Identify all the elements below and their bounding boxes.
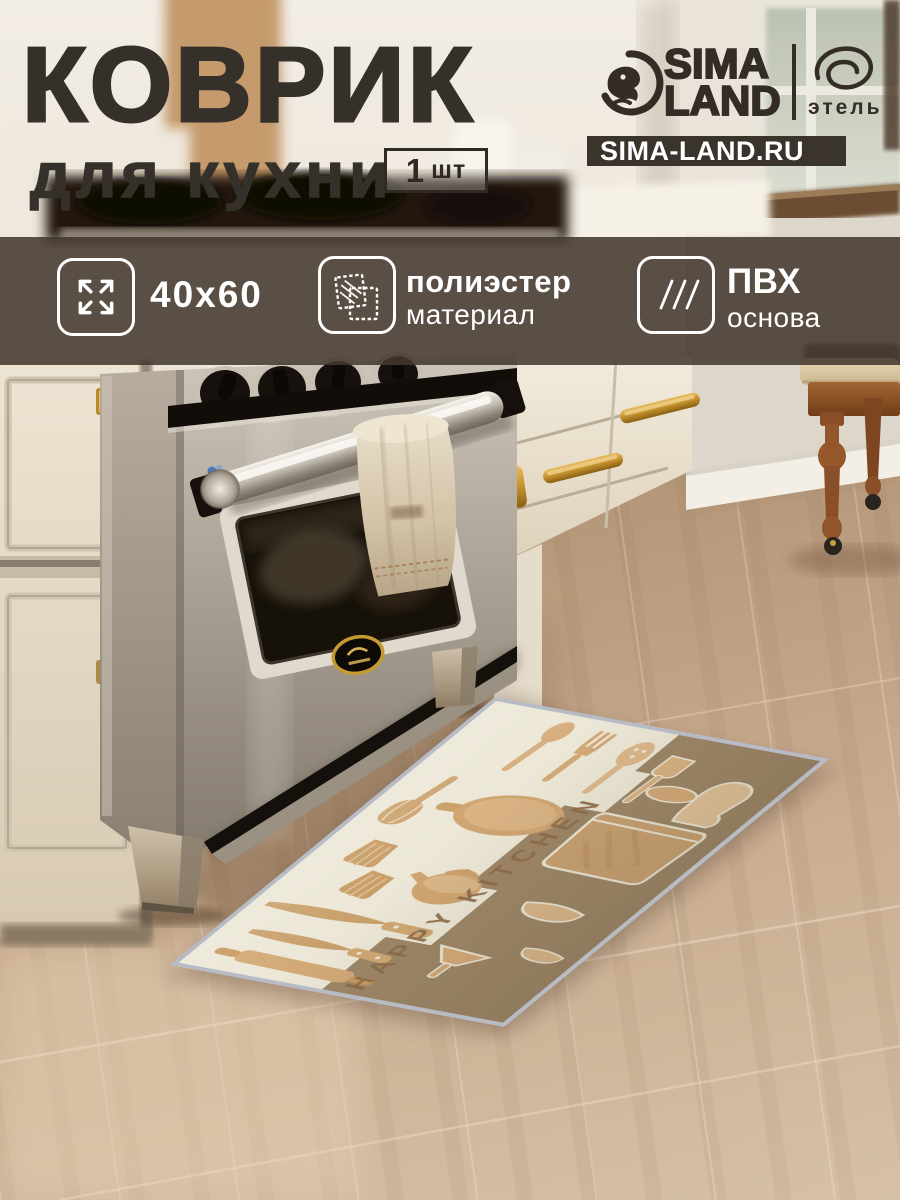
feature-size-label: 40x60 — [150, 275, 263, 315]
sub-brand-label: этель — [808, 96, 883, 120]
feature-base: ПВХ основа — [727, 263, 821, 333]
feature-size: 40x60 — [150, 275, 263, 315]
feature-material-sublabel: материал — [406, 300, 571, 330]
fabric-swatches-icon — [331, 267, 383, 323]
etel-script-icon — [804, 42, 886, 98]
expand-arrows-icon — [71, 272, 121, 322]
product-card-image: HAPPY KITCHEN 40x60 полиэстер материал — [0, 0, 900, 1200]
website-bar: SIMA-LAND.RU — [587, 136, 846, 166]
diagonal-hatch-icon — [650, 267, 702, 323]
sima-land-bird-icon — [594, 48, 664, 118]
feature-material-label: полиэстер — [406, 265, 571, 298]
product-subtitle: для кухни — [30, 138, 393, 212]
feature-size-iconbox — [57, 258, 135, 336]
quantity-unit: шт — [431, 156, 466, 185]
quantity-badge: 1 шт — [384, 148, 488, 193]
feature-base-sublabel: основа — [727, 303, 821, 333]
feature-material-iconbox — [318, 256, 396, 334]
quantity-value: 1 — [406, 152, 424, 190]
feature-base-iconbox — [637, 256, 715, 334]
sima-land-wordmark: SIMA LAND — [664, 46, 781, 120]
feature-base-label: ПВХ — [727, 263, 821, 301]
feature-material: полиэстер материал — [406, 265, 571, 331]
website-url: SIMA-LAND.RU — [600, 136, 804, 166]
brand-line-2: LAND — [664, 83, 781, 120]
brand-divider — [792, 44, 796, 120]
features-banner: 40x60 полиэстер материал ПВХ основа — [0, 237, 900, 365]
product-title: КОВРИК — [22, 32, 475, 138]
stove-leg — [432, 646, 478, 708]
